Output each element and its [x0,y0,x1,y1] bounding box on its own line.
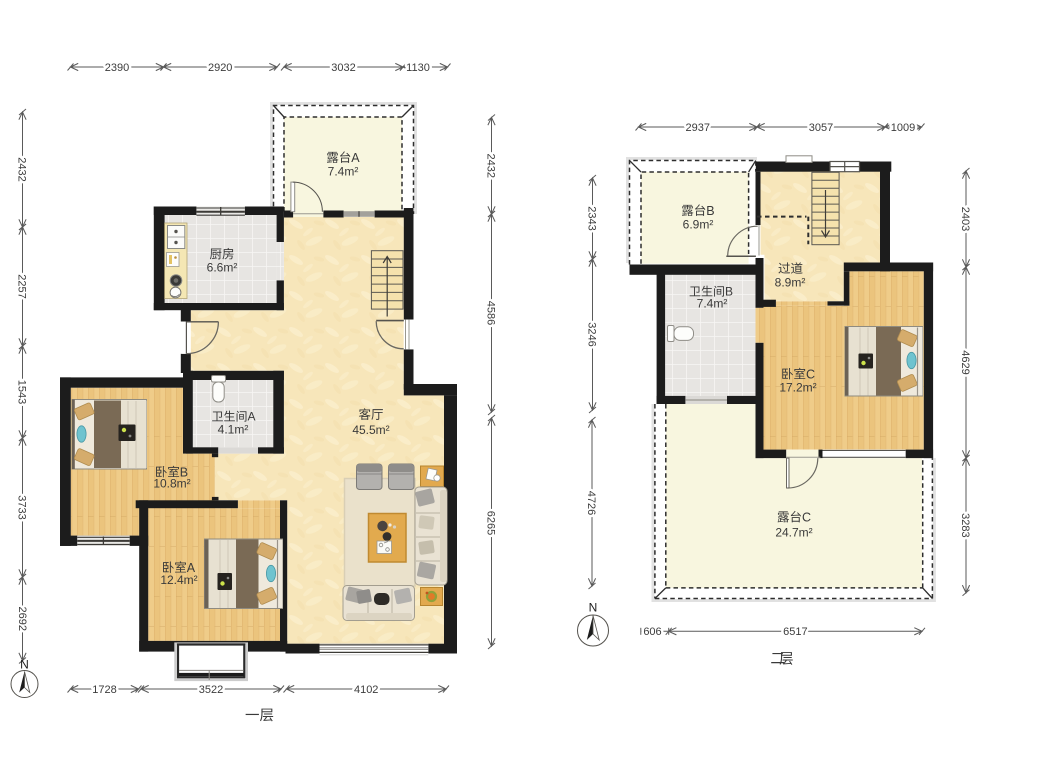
svg-text:N: N [589,601,598,615]
svg-text:4726: 4726 [585,491,597,515]
svg-text:4102: 4102 [354,684,378,696]
svg-text:3032: 3032 [331,62,355,74]
svg-text:6.6m²: 6.6m² [207,261,238,275]
svg-text:45.5m²: 45.5m² [352,423,389,437]
svg-text:3246: 3246 [586,322,598,346]
svg-text:24.7m²: 24.7m² [775,526,812,540]
svg-text:3057: 3057 [809,122,833,134]
svg-text:B: B [706,204,714,218]
svg-text:2390: 2390 [105,62,129,74]
svg-text:2432: 2432 [485,154,497,178]
svg-text:2343: 2343 [586,206,598,230]
svg-text:6.9m²: 6.9m² [683,218,714,232]
svg-text:2432: 2432 [16,157,28,181]
svg-text:A: A [248,410,256,424]
svg-text:4.1m²: 4.1m² [218,423,249,437]
svg-text:1130: 1130 [406,62,430,74]
svg-text:6265: 6265 [485,511,497,535]
svg-text:1009: 1009 [891,122,915,134]
svg-text:2920: 2920 [208,62,232,74]
svg-text:17.2m²: 17.2m² [779,381,816,395]
svg-text:3522: 3522 [199,684,223,696]
svg-text:2257: 2257 [16,274,28,298]
svg-text:2692: 2692 [16,607,28,631]
svg-text:606: 606 [643,626,661,638]
svg-text:3733: 3733 [16,495,28,519]
svg-text:1543: 1543 [16,380,28,404]
svg-text:7.4m²: 7.4m² [697,297,728,311]
svg-text:10.8m²: 10.8m² [153,477,190,491]
svg-text:A: A [351,151,360,165]
svg-text:C: C [802,510,811,524]
svg-text:4586: 4586 [485,301,497,325]
svg-text:N: N [20,658,29,672]
svg-text:2403: 2403 [959,207,971,231]
svg-text:7.4m²: 7.4m² [328,165,359,179]
svg-text:12.4m²: 12.4m² [160,573,197,587]
svg-text:2937: 2937 [686,122,710,134]
svg-text:6517: 6517 [783,626,807,638]
svg-text:C: C [806,367,815,381]
svg-text:8.9m²: 8.9m² [775,276,806,290]
svg-text:1728: 1728 [92,684,116,696]
svg-text:3283: 3283 [959,513,971,537]
svg-text:4629: 4629 [959,350,971,374]
